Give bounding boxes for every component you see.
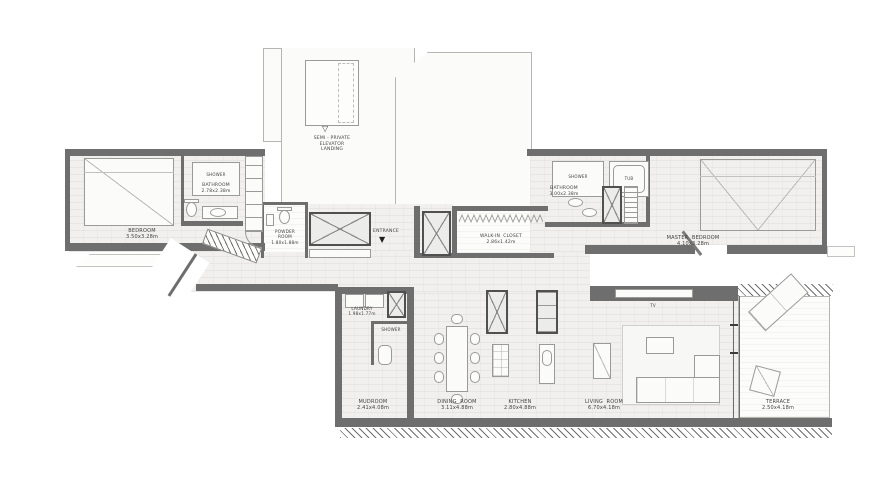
tub-name: TUB — [625, 176, 634, 181]
master-sink-1 — [568, 198, 583, 207]
room-label-mudroom: MUDROOM 2.41x4.08m — [348, 399, 398, 412]
deck-hatch-bottom — [340, 428, 832, 438]
entry-closet — [309, 212, 371, 246]
dining-chair — [470, 333, 480, 345]
master-shower-door — [602, 186, 622, 224]
wall-under-bathroom — [181, 221, 243, 226]
powder-sink — [266, 214, 274, 226]
sliding-door-handle — [730, 352, 738, 354]
room-dims: 2.86x1.42m — [486, 240, 515, 246]
room-label-master-bathroom: BATHROOM 3.00x2.38m — [538, 186, 590, 197]
room-dims: 2.80x4.88m — [504, 405, 536, 411]
shower-name: SHOWER — [206, 172, 225, 177]
room-label-living: LIVING ROOM 6.70x4.18m — [575, 399, 633, 412]
upper-volume-right — [395, 52, 532, 212]
sliding-door — [733, 296, 740, 418]
wall-closet-divider — [452, 206, 457, 258]
coffee-table — [646, 337, 674, 354]
room-dims: 6.70x4.18m — [588, 405, 620, 411]
ledge-right — [827, 246, 855, 257]
landing-line3: LANDING — [321, 147, 343, 153]
wall-corridor-bottom — [196, 284, 338, 291]
wall-right-end — [822, 149, 827, 253]
room-dims: 2.41x4.08m — [357, 405, 389, 411]
dining-chair — [434, 352, 444, 364]
dining-chair — [434, 371, 444, 383]
entrance-text: ENTRANCE — [373, 229, 399, 235]
master-shower-label: SHOWER — [556, 174, 600, 179]
shower-name: SHOWER — [381, 327, 400, 332]
linen-closet — [245, 156, 263, 232]
sofa-bottom — [636, 377, 720, 403]
kitchen-island — [492, 344, 509, 377]
tv-niche — [615, 289, 693, 298]
room-label-walk-in-closet: WALK-IN CLOSET 2.86x1.42m — [463, 234, 539, 245]
room-dims: 2.78x2.38m — [201, 189, 230, 195]
tv-label: TV — [645, 303, 661, 308]
lower-shower-label: SHOWER — [374, 327, 408, 332]
room-label-master-bedroom: MASTER BEDROOM 4.10x3.28m — [653, 235, 733, 248]
mudroom-closet — [387, 291, 406, 318]
hall-closet — [422, 211, 451, 256]
room-dims: 4.10x3.28m — [677, 241, 709, 247]
side-table — [593, 343, 611, 379]
refrigerator — [486, 290, 508, 334]
dining-table — [446, 326, 468, 392]
dining-chair — [451, 314, 463, 324]
sliding-door-handle — [730, 324, 738, 326]
shower-label: SHOWER — [196, 172, 236, 177]
floor-plan: ▽ SEMI - PRIVATE ELEVATOR LANDING BEDROO… — [0, 0, 890, 500]
bed — [84, 158, 174, 226]
master-sink-2 — [582, 208, 597, 217]
room-dims: 3.00x2.38m — [549, 192, 578, 198]
room-dims: 1.80x1.88m — [271, 240, 298, 245]
dining-chair — [470, 352, 480, 364]
room-label-laundry: LAUNDRY 1.98x1.77m — [341, 306, 383, 317]
dining-chair — [470, 371, 480, 383]
tv-text: TV — [650, 303, 656, 308]
shower-name: SHOWER — [568, 174, 587, 179]
wall-entry-right — [414, 206, 420, 258]
room-dims: 3.11x4.88m — [441, 405, 473, 411]
landing-label: SEMI - PRIVATE ELEVATOR LANDING — [294, 136, 370, 153]
wall-shower-top — [371, 321, 408, 324]
room-dims: 3.50x3.28m — [126, 234, 158, 240]
kitchen-tall-unit — [536, 290, 558, 334]
bed-sheet-line — [84, 172, 174, 173]
room-label-terrace: TERRACE 2.50x4.18m — [752, 399, 804, 412]
room-label-kitchen: KITCHEN 2.80x4.88m — [493, 399, 547, 412]
wall-bedroom-bathroom — [181, 156, 184, 226]
master-bed — [700, 159, 816, 231]
room-dims: 1.98x1.77m — [348, 311, 375, 316]
entrance-direction-icon: ▼ — [379, 236, 385, 244]
wall-left-end — [65, 149, 70, 245]
wall-powder-top — [261, 202, 308, 205]
landing-direction-icon: ▽ — [322, 125, 328, 133]
master-bath-panel — [624, 186, 638, 224]
entrance-label: ENTRANCE — [364, 229, 408, 235]
hanging-clothes-icon — [459, 213, 543, 225]
entry-cabinet — [309, 249, 371, 258]
toilet — [186, 202, 197, 217]
master-bed-sheet-line — [700, 176, 816, 177]
elevator-shaft-inner — [338, 63, 354, 123]
wall-mudroom-dining — [407, 287, 414, 427]
room-label-bathroom: BATHROOM 2.78x2.38m — [188, 183, 244, 194]
sink — [210, 208, 226, 217]
room-label-bedroom: BEDROOM 3.50x3.28m — [112, 228, 172, 241]
wall-top-left-wing — [65, 149, 265, 156]
wall-top-right-wing — [527, 149, 827, 156]
wall-walkin-top — [452, 206, 548, 211]
lower-shower-tray — [378, 345, 392, 365]
dining-chair — [434, 333, 444, 345]
powder-toilet — [279, 210, 290, 224]
sofa-chaise — [694, 355, 720, 378]
room-label-powder: POWDER ROOM 1.80x1.88m — [264, 229, 306, 245]
room-label-dining: DINING ROOM 3.11x4.88m — [427, 399, 487, 412]
kitchen-sink — [542, 350, 552, 366]
tub-label: TUB — [613, 176, 645, 181]
room-dims: 2.50x4.18m — [762, 405, 794, 411]
